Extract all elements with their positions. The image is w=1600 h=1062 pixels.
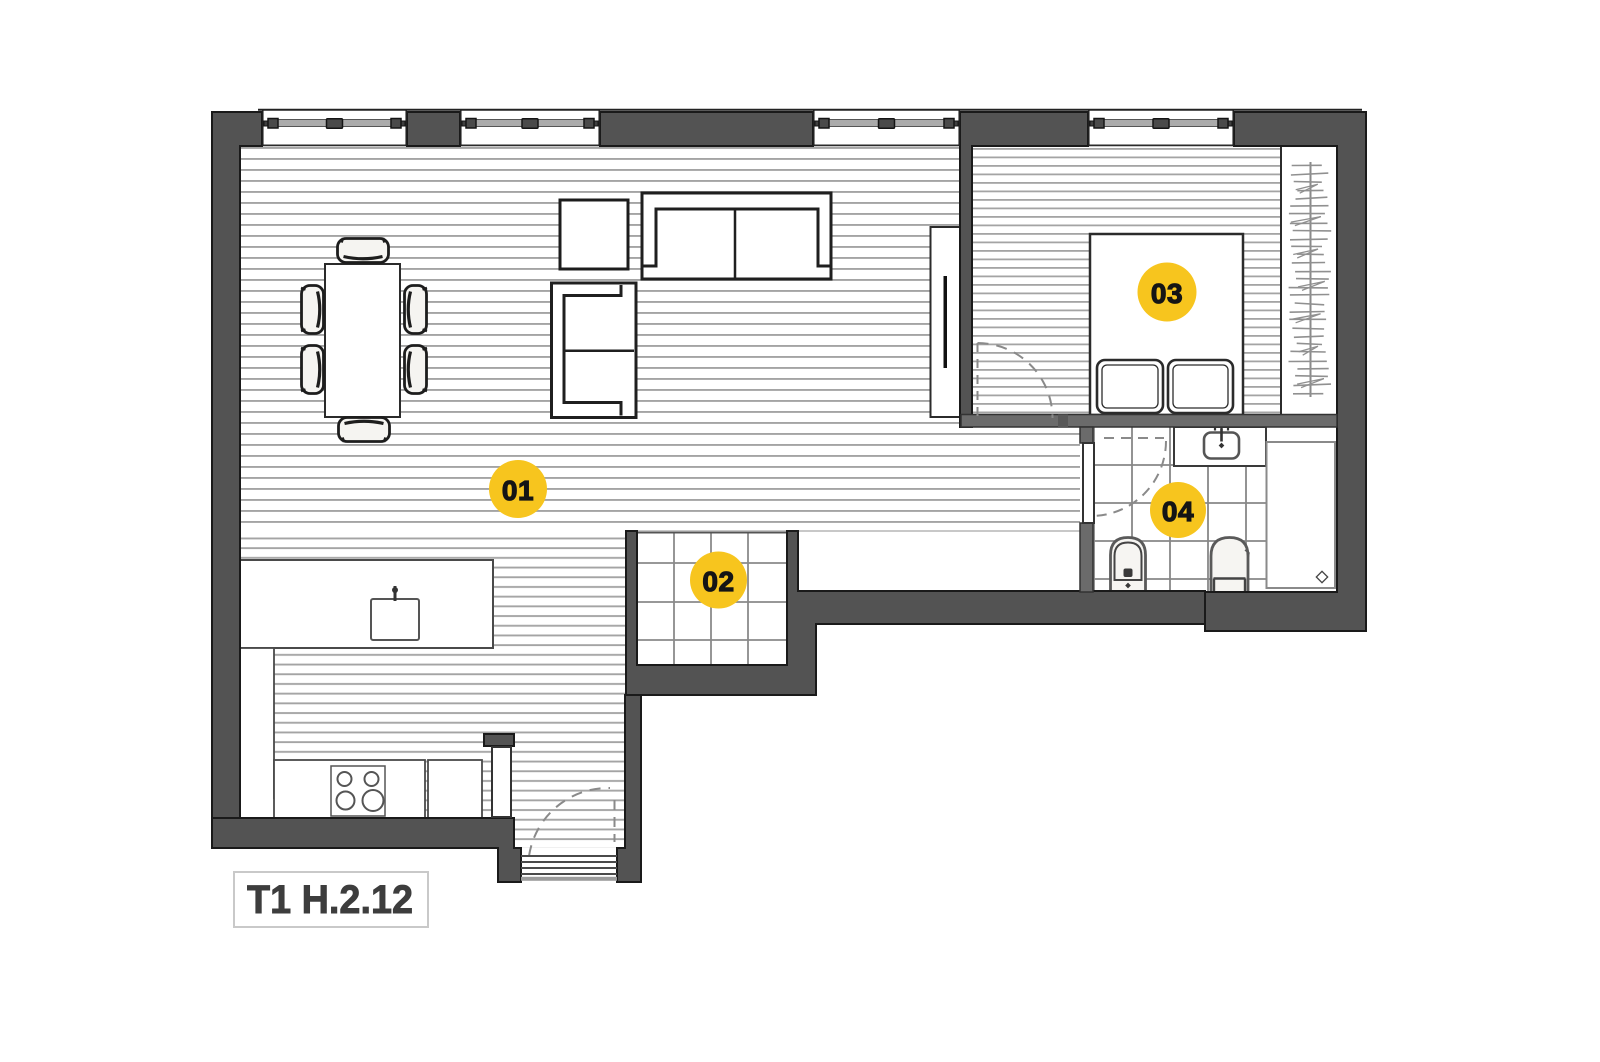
svg-text:04: 04 — [1162, 496, 1194, 527]
svg-text:01: 01 — [502, 475, 534, 506]
svg-text:T1 H.2.12: T1 H.2.12 — [247, 878, 413, 922]
svg-text:02: 02 — [702, 566, 734, 597]
svg-text:03: 03 — [1151, 278, 1183, 309]
